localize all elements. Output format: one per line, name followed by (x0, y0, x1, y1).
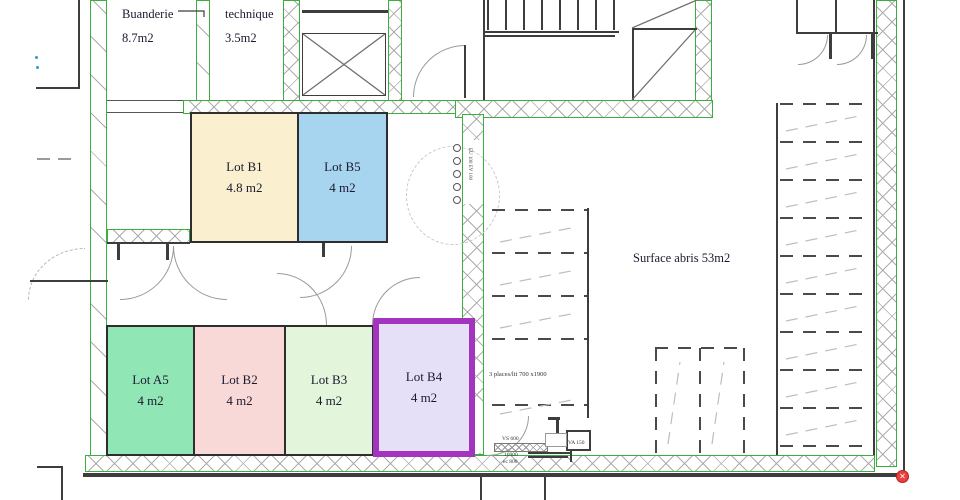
elevator-shaft (302, 33, 386, 96)
bike-stall-line (780, 103, 872, 105)
pit-line (544, 477, 546, 500)
lot-b3-area: 4 m2 (316, 391, 342, 411)
equipment-box (545, 433, 567, 447)
technique-name: technique (225, 3, 274, 27)
closet-wall (796, 32, 878, 34)
bike-stall-line (743, 348, 745, 455)
dim-label-1: 10000 (504, 452, 518, 459)
bike-symbols-left (500, 227, 576, 414)
wall-buanderie-right (196, 0, 210, 101)
stair-stringer (483, 0, 485, 100)
pipe-elbow (570, 451, 572, 462)
technique-area: 3.5m2 (225, 27, 274, 51)
wall-band-under-stairs (455, 100, 713, 118)
closet-wall (835, 0, 837, 33)
lot-b2-label: Lot B2 (221, 370, 257, 390)
lot-b4-area: 4 m2 (411, 388, 437, 408)
lot-b2[interactable]: Lot B2 4 m2 (193, 325, 286, 456)
stair-direction-line (632, 30, 695, 100)
bike-stall-line (780, 293, 872, 295)
door-swing-dashed (28, 248, 85, 300)
door-jamb (829, 33, 832, 59)
lot-b5-area: 4 m2 (329, 178, 355, 198)
pipe-line (528, 456, 568, 458)
bike-stall-line (492, 295, 587, 297)
bike-stall-line (780, 217, 872, 219)
boundary-bracket (61, 466, 63, 500)
riser-pipe (453, 157, 461, 165)
wall-edge-line (107, 242, 190, 244)
lot-b1[interactable]: Lot B1 4.8 m2 (192, 114, 297, 241)
door-arc (173, 246, 227, 300)
stair-tread (541, 0, 543, 30)
dash-mark (58, 158, 71, 160)
wall-band-left2 (107, 229, 190, 243)
stair-landing-wall (632, 28, 634, 100)
lot-b1-area: 4.8 m2 (226, 178, 262, 198)
va-label: VA 150 (568, 440, 585, 447)
pipe-line (528, 452, 572, 454)
bike-stall-line (655, 348, 657, 455)
wall-right (876, 0, 897, 467)
stair-direction-line (632, 0, 697, 28)
lot-a5-area: 4 m2 (137, 391, 163, 411)
floor-plan: Lot B1 4.8 m2 Lot B5 4 m2 Lot A5 4 m2 Lo… (0, 0, 960, 500)
wall-stair-right (695, 0, 712, 101)
bike-stall-line (699, 348, 701, 455)
bike-symbols-right (786, 115, 864, 435)
lot-a5-label: Lot A5 (132, 370, 168, 390)
outer-bottom-line (83, 473, 905, 477)
lot-b4-selected[interactable]: Lot B4 4 m2 (373, 318, 475, 457)
boundary-bracket (78, 0, 80, 89)
wall-shaft-right (388, 0, 402, 101)
bike-symbols-middle (668, 362, 724, 444)
stair-landing-line2 (483, 35, 615, 37)
door-arc (837, 35, 867, 65)
wall-thin-band (107, 100, 184, 113)
pit-line (480, 477, 482, 500)
closet-wall (796, 0, 798, 33)
door-arc (413, 45, 465, 97)
lot-b4-label: Lot B4 (406, 367, 442, 387)
bike-stall-line (780, 369, 872, 371)
riser-pipe (453, 183, 461, 191)
room-label-technique: technique 3.5m2 (225, 3, 274, 51)
survey-marker: ✕ (896, 470, 909, 483)
threshold-line (30, 280, 108, 282)
lot-b1-label: Lot B1 (226, 157, 262, 177)
lot-b3-label: Lot B3 (311, 370, 347, 390)
dim-label-2: ec 800 (503, 459, 518, 466)
surface-abris-label: Surface abris 53m2 (633, 247, 730, 271)
shaft-top-line (302, 10, 388, 13)
stair-tread (523, 0, 525, 30)
door-opening-left-wall (91, 252, 106, 288)
buanderie-area: 8.7m2 (122, 27, 173, 51)
stair-tread (487, 0, 489, 30)
room-label-buanderie: Buanderie 8.7m2 (122, 3, 173, 51)
stair-landing-top (632, 28, 697, 30)
lot-a5[interactable]: Lot A5 4 m2 (106, 325, 195, 456)
wall-band-bottom (85, 455, 875, 472)
stair-tread (505, 0, 507, 30)
bike-places-label: 3 places/lit 700 x1900 (489, 371, 547, 379)
stair-landing-line (483, 31, 619, 33)
door-arc (372, 277, 420, 325)
lot-b3[interactable]: Lot B3 4 m2 (284, 325, 374, 456)
wall-technique-right (283, 0, 300, 101)
stair-tread (613, 0, 615, 30)
wall-left (90, 0, 107, 457)
right-wall-edge (873, 0, 875, 455)
riser-pipe (453, 170, 461, 178)
bike-stall-line (492, 404, 587, 406)
lot-b2-area: 4 m2 (226, 391, 252, 411)
riser-label: EU 100 EV 100 (466, 148, 472, 180)
riser-pipe (453, 196, 461, 204)
stair-tread (595, 0, 597, 30)
survey-marker-x: ✕ (899, 472, 906, 481)
survey-dot (35, 56, 38, 59)
bike-stall-edge (587, 208, 589, 418)
bike-stall-line (780, 331, 872, 333)
buanderie-name: Buanderie (122, 3, 173, 27)
door-leaf (464, 45, 466, 98)
bike-stall-line (780, 179, 872, 181)
vs-label: VS 600 (502, 436, 519, 443)
bike-stall-line (780, 445, 872, 447)
door-arc (120, 246, 174, 300)
outer-right-line (903, 0, 905, 477)
riser-pipe (453, 144, 461, 152)
lot-block-b1-b5: Lot B1 4.8 m2 Lot B5 4 m2 (190, 112, 388, 243)
survey-dot (36, 66, 39, 69)
stair-tread (559, 0, 561, 30)
boundary-bracket (37, 466, 62, 468)
faucet-symbol (556, 417, 559, 433)
lot-b5[interactable]: Lot B5 4 m2 (297, 114, 386, 241)
bike-stall-line (780, 141, 872, 143)
vent-grille (494, 443, 548, 452)
bike-stall-line (780, 255, 872, 257)
bike-stall-line (492, 252, 587, 254)
bike-stall-line (780, 407, 872, 409)
bike-stall-edge (776, 103, 778, 455)
bike-stall-line (492, 209, 587, 211)
stair-tread (577, 0, 579, 30)
bike-stall-line (492, 338, 587, 340)
boundary-bracket (36, 87, 80, 89)
dash-mark (37, 158, 50, 160)
lot-b5-label: Lot B5 (324, 157, 360, 177)
door-arc (798, 35, 828, 65)
